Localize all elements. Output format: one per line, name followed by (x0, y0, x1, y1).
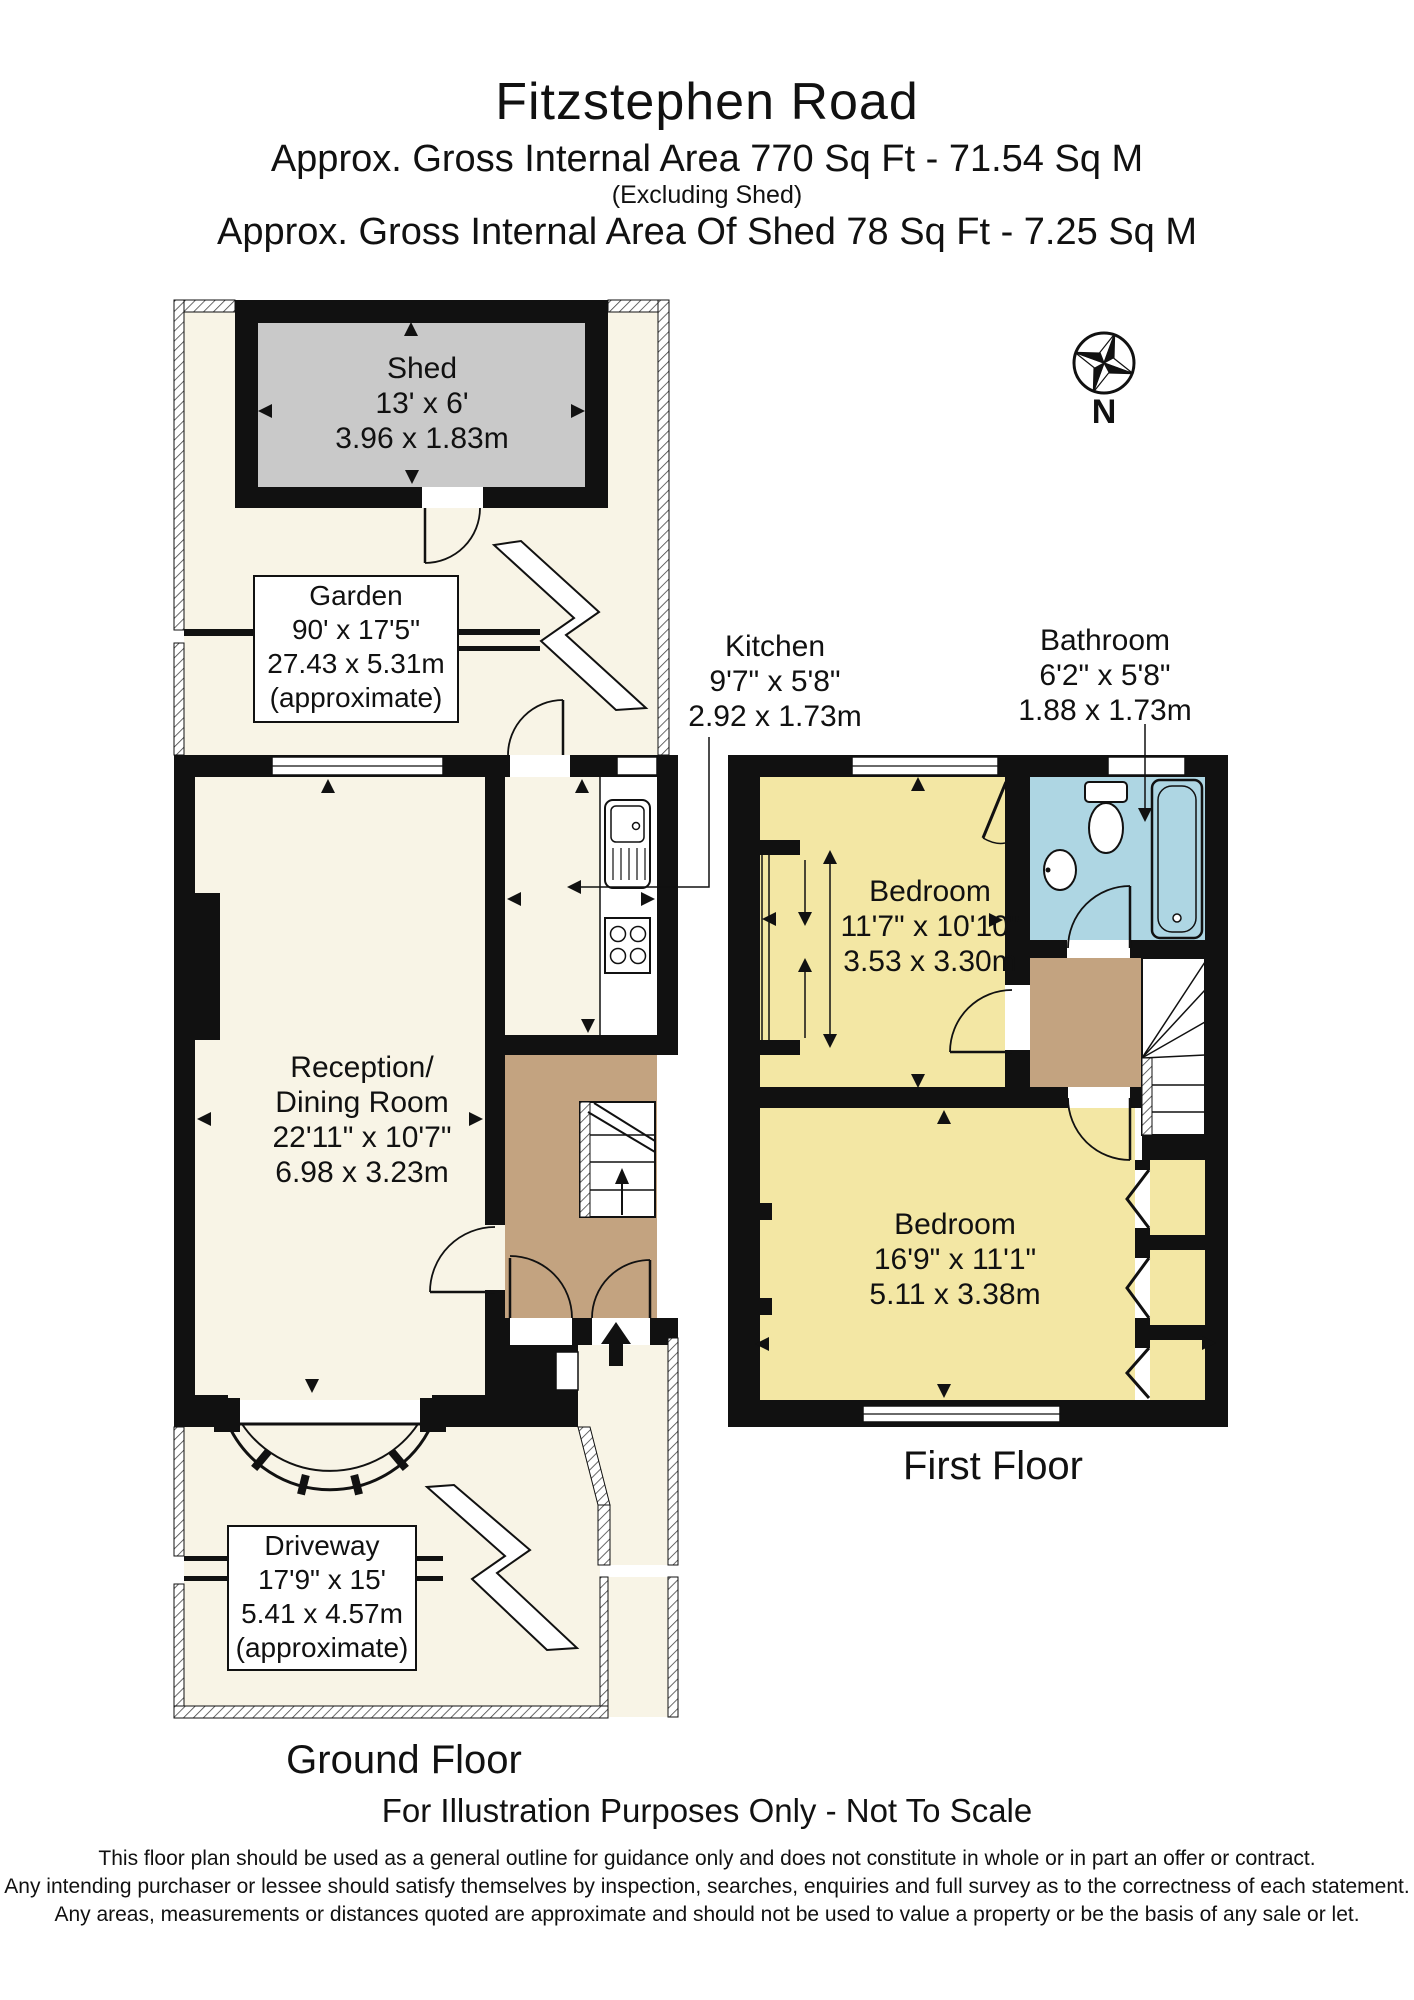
reception-label: Reception/ Dining Room 22'11" x 10'7" 6.… (237, 1050, 487, 1190)
page-title: Fitzstephen Road (0, 72, 1414, 132)
hob-icon (605, 918, 650, 973)
floorplan-page: Fitzstephen Road Approx. Gross Internal … (0, 0, 1414, 2000)
disclaimer-text: This floor plan should be used as a gene… (0, 1845, 1414, 1929)
reception-window (272, 757, 443, 775)
compass-north-label: N (1054, 393, 1154, 432)
sink-icon (605, 800, 650, 888)
first-floor-label: First Floor (793, 1444, 1193, 1489)
ground-floor-plan (174, 300, 709, 1718)
porch-side-window (556, 1352, 578, 1390)
ground-stairs (580, 1102, 655, 1217)
bedroom2-window (863, 1406, 1060, 1422)
ground-floor-label: Ground Floor (204, 1738, 604, 1783)
floorplan-drawing (0, 0, 1414, 2000)
garden-label: Garden 90' x 17'5" 27.43 x 5.31m (approx… (253, 575, 459, 723)
bedroom1-window (852, 757, 998, 775)
bathroom-label: Bathroom 6'2" x 5'8" 1.88 x 1.73m (995, 623, 1215, 728)
illustration-notice: For Illustration Purposes Only - Not To … (0, 1792, 1414, 1830)
gross-area-line: Approx. Gross Internal Area 770 Sq Ft - … (0, 138, 1414, 181)
kitchen-window (617, 757, 657, 775)
first-floor-stairs (1142, 958, 1205, 1135)
shed-label: Shed 13' x 6' 3.96 x 1.83m (322, 351, 522, 456)
bedroom2-label: Bedroom 16'9" x 11'1" 5.11 x 3.38m (830, 1207, 1080, 1312)
kitchen-label: Kitchen 9'7" x 5'8" 2.92 x 1.73m (665, 629, 885, 734)
bedroom1-label: Bedroom 11'7" x 10'10" 3.53 x 3.30m (805, 874, 1055, 979)
compass-icon (1064, 323, 1143, 402)
shed-area-line: Approx. Gross Internal Area Of Shed 78 S… (0, 211, 1414, 254)
bathroom-window (1108, 757, 1185, 775)
excluding-shed-note: (Excluding Shed) (0, 181, 1414, 210)
bathtub-icon (1152, 780, 1202, 938)
toilet-icon (1085, 782, 1127, 853)
driveway-label: Driveway 17'9" x 15' 5.41 x 4.57m (appro… (227, 1525, 417, 1671)
first-floor-plan (728, 724, 1228, 1427)
